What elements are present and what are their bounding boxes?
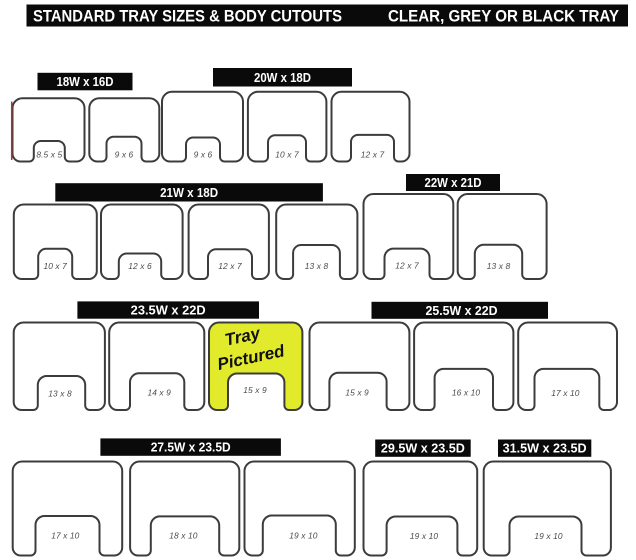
svg-text:10 x 7: 10 x 7 bbox=[275, 150, 299, 160]
svg-text:22W x 21D: 22W x 21D bbox=[425, 176, 482, 190]
svg-text:STANDARD TRAY SIZES & BODY CUT: STANDARD TRAY SIZES & BODY CUTOUTS bbox=[33, 7, 342, 25]
svg-text:9 x 6: 9 x 6 bbox=[194, 150, 213, 160]
svg-text:13 x 8: 13 x 8 bbox=[48, 389, 72, 399]
svg-text:27.5W x 23.5D: 27.5W x 23.5D bbox=[151, 441, 231, 455]
svg-text:12 x 7: 12 x 7 bbox=[395, 261, 419, 271]
svg-text:18W x 16D: 18W x 16D bbox=[57, 75, 114, 89]
svg-text:CLEAR, GREY OR BLACK TRAY: CLEAR, GREY OR BLACK TRAY bbox=[388, 7, 619, 25]
svg-text:12 x 7: 12 x 7 bbox=[218, 261, 242, 271]
svg-text:15 x 9: 15 x 9 bbox=[243, 385, 267, 395]
svg-text:20W x 18D: 20W x 18D bbox=[254, 71, 311, 85]
svg-text:15 x 9: 15 x 9 bbox=[345, 388, 369, 398]
svg-text:9 x 6: 9 x 6 bbox=[115, 150, 134, 160]
svg-text:12 x 6: 12 x 6 bbox=[128, 261, 152, 271]
svg-text:16 x 10: 16 x 10 bbox=[452, 388, 480, 398]
svg-text:23.5W x 22D: 23.5W x 22D bbox=[131, 304, 206, 318]
svg-text:31.5W x 23.5D: 31.5W x 23.5D bbox=[503, 442, 587, 456]
svg-text:19 x 10: 19 x 10 bbox=[289, 531, 317, 541]
svg-text:29.5W x 23.5D: 29.5W x 23.5D bbox=[381, 442, 465, 456]
svg-text:10 x 7: 10 x 7 bbox=[43, 261, 67, 271]
svg-text:14 x 9: 14 x 9 bbox=[147, 388, 171, 398]
svg-text:17 x 10: 17 x 10 bbox=[551, 388, 579, 398]
svg-text:8.5 x 5: 8.5 x 5 bbox=[36, 150, 62, 160]
svg-text:19 x 10: 19 x 10 bbox=[410, 531, 438, 541]
svg-text:21W x 18D: 21W x 18D bbox=[160, 186, 218, 200]
svg-text:19 x 10: 19 x 10 bbox=[534, 531, 562, 541]
svg-text:13 x 8: 13 x 8 bbox=[305, 261, 329, 271]
svg-text:25.5W x 22D: 25.5W x 22D bbox=[426, 304, 498, 318]
svg-text:17 x 10: 17 x 10 bbox=[51, 531, 79, 541]
svg-text:12 x 7: 12 x 7 bbox=[361, 150, 385, 160]
svg-text:18 x 10: 18 x 10 bbox=[169, 531, 197, 541]
svg-text:13 x 8: 13 x 8 bbox=[487, 261, 511, 271]
